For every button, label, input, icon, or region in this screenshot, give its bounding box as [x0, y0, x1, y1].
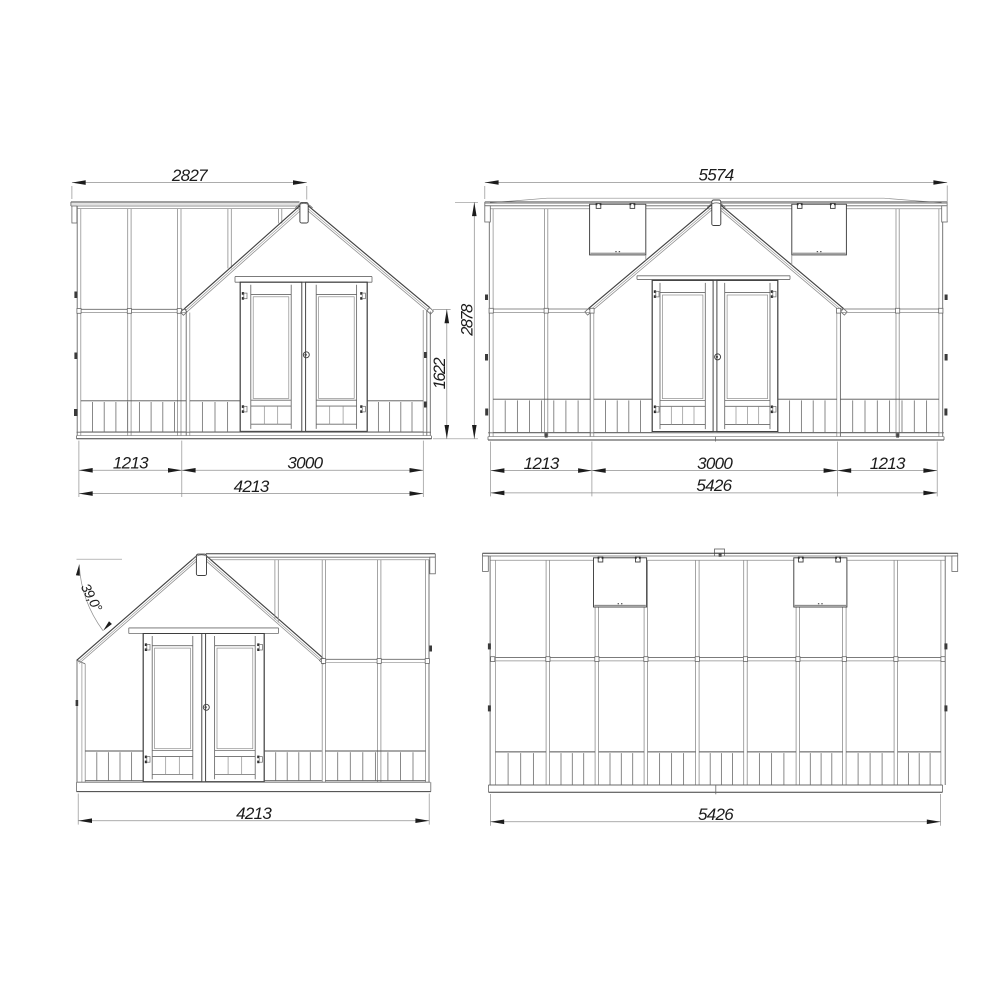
svg-text:2827: 2827 [171, 166, 208, 185]
svg-text:5574: 5574 [698, 166, 733, 185]
svg-text:4213: 4213 [234, 477, 270, 496]
svg-text:2878: 2878 [459, 303, 477, 337]
svg-text:5426: 5426 [696, 476, 732, 495]
svg-text:1213: 1213 [113, 454, 149, 473]
svg-text:5426: 5426 [698, 805, 734, 824]
svg-text:3000: 3000 [287, 454, 323, 473]
svg-text:1213: 1213 [870, 454, 906, 473]
svg-text:4213: 4213 [236, 804, 272, 823]
svg-text:1622: 1622 [431, 358, 449, 390]
svg-text:1213: 1213 [524, 454, 560, 473]
svg-text:3000: 3000 [697, 454, 733, 473]
